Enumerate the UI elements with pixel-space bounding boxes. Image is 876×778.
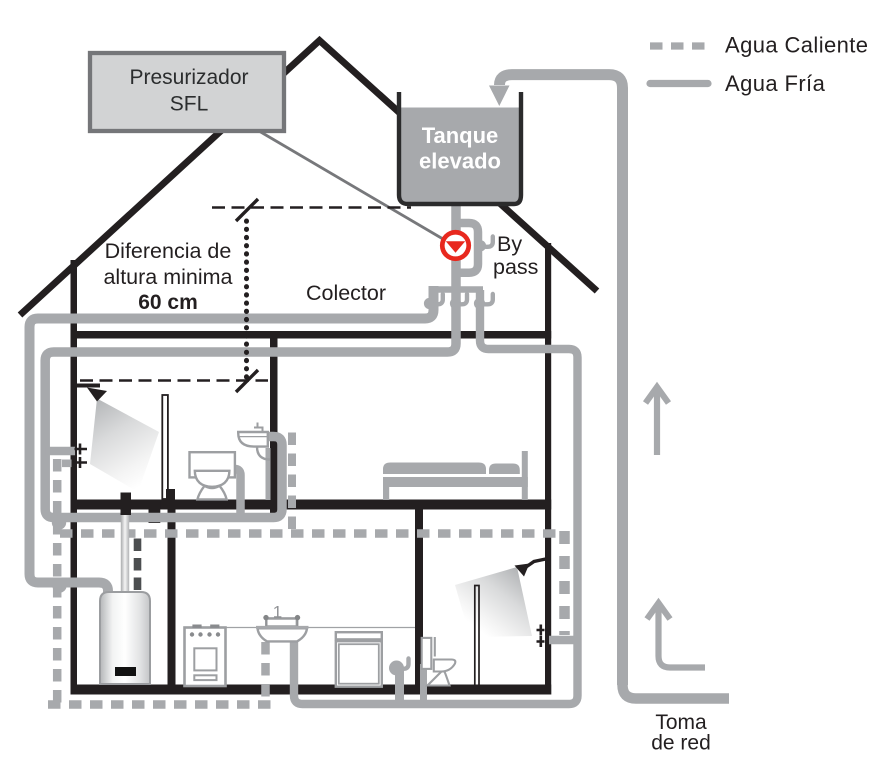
svg-text:Diferencia de: Diferencia de: [105, 239, 232, 263]
svg-text:Tanque: Tanque: [422, 123, 499, 148]
svg-text:Agua Fría: Agua Fría: [725, 71, 826, 96]
svg-text:altura minima: altura minima: [103, 265, 232, 289]
svg-text:elevado: elevado: [419, 149, 501, 174]
svg-text:60 cm: 60 cm: [138, 291, 198, 314]
svg-text:de red: de red: [651, 732, 711, 755]
svg-text:pass: pass: [493, 255, 538, 279]
svg-text:Presurizador: Presurizador: [129, 66, 248, 89]
svg-text:SFL: SFL: [170, 93, 209, 116]
svg-text:Colector: Colector: [306, 281, 386, 305]
svg-text:By: By: [497, 232, 522, 256]
svg-text:Agua Caliente: Agua Caliente: [725, 33, 868, 58]
